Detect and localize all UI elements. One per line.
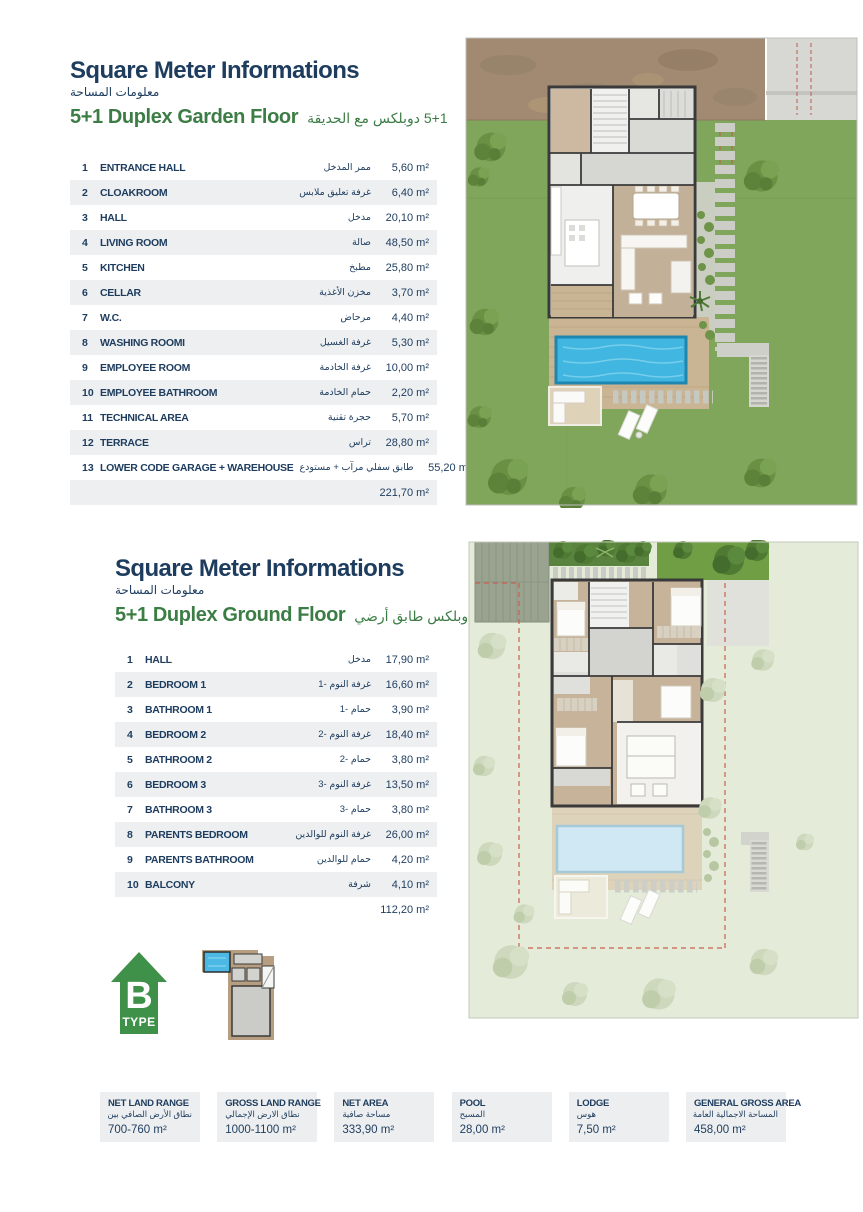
row-name-ar: غرفة الخادمة [314,362,371,373]
table-row: 6CELLARمخزن الأغذية3,70 m² [70,280,437,305]
row-number: 11 [82,412,100,424]
footer-cell-value: 1000-1100 m² [225,1124,309,1136]
row-number: 2 [127,679,145,691]
footer-cell-value: 28,00 m² [460,1124,544,1136]
row-name-en: CLOAKROOM [100,187,167,199]
footer-cell-label-arabic: نطاق الارض الإجمالي [225,1109,309,1119]
row-name-en: LIVING ROOM [100,237,167,249]
table-row: 4BEDROOM 2غرفة النوم -218,40 m² [115,722,437,747]
row-area: 10,00 m² [371,362,429,374]
row-number: 7 [127,804,145,816]
row-name-ar: مخزن الأغذية [313,287,371,298]
footer-cell-label-arabic: مساحة صافية [342,1109,426,1119]
table-row: 5BATHROOM 2حمام -23,80 m² [115,747,437,772]
row-number: 1 [82,162,100,174]
floor-subtitle-arabic: 5+1 دوبلكس مع الحديقة [307,110,448,127]
garden-floor-title-block: Square Meter Informations معلومات المساح… [70,58,448,129]
page-title-arabic: معلومات المساحة [70,85,159,99]
row-number: 2 [82,187,100,199]
row-number: 5 [127,754,145,766]
footer-cell-value: 7,50 m² [577,1124,661,1136]
row-name-ar: مطبخ [343,262,371,273]
row-name-en: TERRACE [100,437,149,449]
row-number: 1 [127,654,145,666]
row-number: 3 [127,704,145,716]
table-row: 2BEDROOM 1غرفة النوم -116,60 m² [115,672,437,697]
table-row: 9PARENTS BATHROOMحمام للوالدين4,20 m² [115,847,437,872]
garden-floor-areas-table: 1ENTRANCE HALLممر المدخل5,60 m²2CLOAKROO… [70,155,437,505]
row-number: 6 [82,287,100,299]
page-title-2: Square Meter Informations [115,556,502,581]
row-area: 5,70 m² [371,412,429,424]
footer-cell: LODGE هوس 7,50 m² [569,1092,669,1142]
basement-plan-thumbnail [200,942,280,1045]
row-number: 6 [127,779,145,791]
footer-cell-label: LODGE [577,1099,661,1109]
table-row: 6BEDROOM 3غرفة النوم -313,50 m² [115,772,437,797]
row-area: 3,70 m² [371,287,429,299]
row-area: 3,80 m² [371,804,429,816]
row-number: 12 [82,437,100,449]
footer-cell-value: 700-760 m² [108,1124,192,1136]
footer-cell: POOL المسبح 28,00 m² [452,1092,552,1142]
row-number: 8 [82,337,100,349]
row-name-en: BEDROOM 3 [145,779,206,791]
row-name-en: HALL [145,654,172,666]
page-title-2-arabic: معلومات المساحة [115,583,204,597]
row-area: 17,90 m² [371,654,429,666]
table-row: 1ENTRANCE HALLممر المدخل5,60 m² [70,155,437,180]
row-name-en: EMPLOYEE ROOM [100,362,190,374]
table-row: 8PARENTS BEDROOMغرفة النوم للوالدين26,00… [115,822,437,847]
footer-cell-label-arabic: هوس [577,1109,661,1119]
row-name-ar: حمام الخادمة [313,387,371,398]
row-number: 13 [82,462,100,474]
row-name-en: BEDROOM 2 [145,729,206,741]
row-area: 13,50 m² [371,779,429,791]
table-row: 5KITCHENمطبخ25,80 m² [70,255,437,280]
row-area: 3,80 m² [371,754,429,766]
row-name-ar: تراس [343,437,371,448]
row-name-ar: ممر المدخل [317,162,371,173]
footer-cell: GENERAL GROSS AREA المساحة الاجمالية الع… [686,1092,786,1142]
type-b-badge: B TYPE [110,950,168,1036]
garden-floor-plan-image [463,35,860,508]
row-name-en: BALCONY [145,879,195,891]
footer-cell-label-arabic: نطاق الأرض الصافي بين [108,1109,192,1119]
row-number: 4 [127,729,145,741]
table-total-row: 112,20 m² [115,897,437,922]
row-name-en: BATHROOM 2 [145,754,212,766]
row-name-ar: مرحاض [334,312,371,323]
table-row: 8WASHING ROOMIغرفة الغسيل5,30 m² [70,330,437,355]
row-area: 5,60 m² [371,162,429,174]
brochure-page: Square Meter Informations معلومات المساح… [0,0,863,1212]
table-row: 3BATHROOM 1حمام -13,90 m² [115,697,437,722]
row-name-ar: غرفة النوم -2 [312,729,371,740]
row-area: 16,60 m² [371,679,429,691]
row-name-ar: حمام للوالدين [311,854,371,865]
row-name-ar: طابق سفلي مرآب + مستودع [293,462,413,473]
table-row: 7W.C.مرحاض4,40 m² [70,305,437,330]
row-area: 26,00 m² [371,829,429,841]
row-number: 10 [127,879,145,891]
row-name-ar: غرفة النوم للوالدين [289,829,371,840]
footer-cell: GROSS LAND RANGE نطاق الارض الإجمالي 100… [217,1092,317,1142]
row-area: 4,40 m² [371,312,429,324]
row-name-en: BATHROOM 1 [145,704,212,716]
badge-letter: B [125,975,152,1017]
row-name-ar: حجرة تقنية [322,412,371,423]
floor-subtitle: 5+1 Duplex Garden Floor 5+1 دوبلكس مع ال… [70,106,448,129]
total-area: 112,20 m² [371,904,429,916]
footer-cell-label-arabic: المسبح [460,1109,544,1119]
summary-footer: NET LAND RANGE نطاق الأرض الصافي بين 700… [100,1092,786,1142]
row-name-en: WASHING ROOMI [100,337,185,349]
row-number: 3 [82,212,100,224]
row-number: 8 [127,829,145,841]
ground-floor-plan-image [467,540,860,1020]
page-title: Square Meter Informations [70,58,448,83]
row-name-en: TECHNICAL AREA [100,412,189,424]
footer-cell-label: NET AREA [342,1099,426,1109]
row-name-en: ENTRANCE HALL [100,162,185,174]
table-row: 7BATHROOM 3حمام -33,80 m² [115,797,437,822]
row-name-en: CELLAR [100,287,141,299]
row-name-ar: حمام -3 [334,804,371,815]
row-name-en: PARENTS BEDROOM [145,829,248,841]
floor-subtitle-2-en: 5+1 Duplex Ground Floor [115,604,345,627]
row-name-en: HALL [100,212,127,224]
row-name-ar: غرفة تعليق ملابس [293,187,371,198]
row-number: 7 [82,312,100,324]
row-area: 4,10 m² [371,879,429,891]
row-area: 4,20 m² [371,854,429,866]
row-name-ar: حمام -1 [334,704,371,715]
row-name-ar: غرفة الغسيل [314,337,371,348]
ground-floor-areas-table: 1HALLمدخل17,90 m²2BEDROOM 1غرفة النوم -1… [115,647,437,922]
row-name-ar: غرفة النوم -3 [312,779,371,790]
table-row: 10EMPLOYEE BATHROOMحمام الخادمة2,20 m² [70,380,437,405]
footer-cell: NET AREA مساحة صافية 333,90 m² [334,1092,434,1142]
row-name-ar: مدخل [342,212,371,223]
row-area: 3,90 m² [371,704,429,716]
row-area: 2,20 m² [371,387,429,399]
footer-cell-label: GROSS LAND RANGE [225,1099,309,1109]
row-name-ar: حمام -2 [334,754,371,765]
table-row: 2CLOAKROOMغرفة تعليق ملابس6,40 m² [70,180,437,205]
table-total-row: 221,70 m² [70,480,437,505]
floor-subtitle-en: 5+1 Duplex Garden Floor [70,106,298,129]
table-row: 11TECHNICAL AREAحجرة تقنية5,70 m² [70,405,437,430]
badge-label: TYPE [122,1015,155,1029]
footer-cell-label: NET LAND RANGE [108,1099,192,1109]
row-area: 28,80 m² [371,437,429,449]
row-name-en: KITCHEN [100,262,145,274]
row-name-ar: صالة [346,237,371,248]
table-row: 12TERRACEتراس28,80 m² [70,430,437,455]
row-number: 9 [127,854,145,866]
footer-cell-label: GENERAL GROSS AREA [694,1099,778,1109]
row-number: 4 [82,237,100,249]
row-name-ar: غرفة النوم -1 [312,679,371,690]
table-row: 3HALLمدخل20,10 m² [70,205,437,230]
footer-cell-value: 458,00 m² [694,1124,778,1136]
row-name-en: EMPLOYEE BATHROOM [100,387,217,399]
table-row: 9EMPLOYEE ROOMغرفة الخادمة10,00 m² [70,355,437,380]
ground-floor-title-block: Square Meter Informations معلومات المساح… [115,556,502,627]
table-row: 1HALLمدخل17,90 m² [115,647,437,672]
footer-cell-label-arabic: المساحة الاجمالية العامة [694,1109,778,1119]
row-name-en: W.C. [100,312,122,324]
row-area: 48,50 m² [371,237,429,249]
footer-cell-label: POOL [460,1099,544,1109]
floor-subtitle-2: 5+1 Duplex Ground Floor 5+1 دوبلكس طابق … [115,604,502,627]
row-area: 6,40 m² [371,187,429,199]
row-number: 5 [82,262,100,274]
row-number: 9 [82,362,100,374]
footer-cell-value: 333,90 m² [342,1124,426,1136]
row-name-ar: شرفة [342,879,371,890]
total-area: 221,70 m² [371,487,429,499]
row-number: 10 [82,387,100,399]
row-name-en: BEDROOM 1 [145,679,206,691]
row-area: 18,40 m² [371,729,429,741]
row-area: 20,10 m² [371,212,429,224]
row-area: 5,30 m² [371,337,429,349]
table-row: 13LOWER CODE GARAGE + WAREHOUSEطابق سفلي… [70,455,437,480]
table-row: 4LIVING ROOMصالة48,50 m² [70,230,437,255]
row-name-en: PARENTS BATHROOM [145,854,254,866]
row-area: 25,80 m² [371,262,429,274]
row-name-en: LOWER CODE GARAGE + WAREHOUSE [100,462,293,474]
row-name-ar: مدخل [342,654,371,665]
footer-cell: NET LAND RANGE نطاق الأرض الصافي بين 700… [100,1092,200,1142]
row-name-en: BATHROOM 3 [145,804,212,816]
table-row: 10BALCONYشرفة4,10 m² [115,872,437,897]
